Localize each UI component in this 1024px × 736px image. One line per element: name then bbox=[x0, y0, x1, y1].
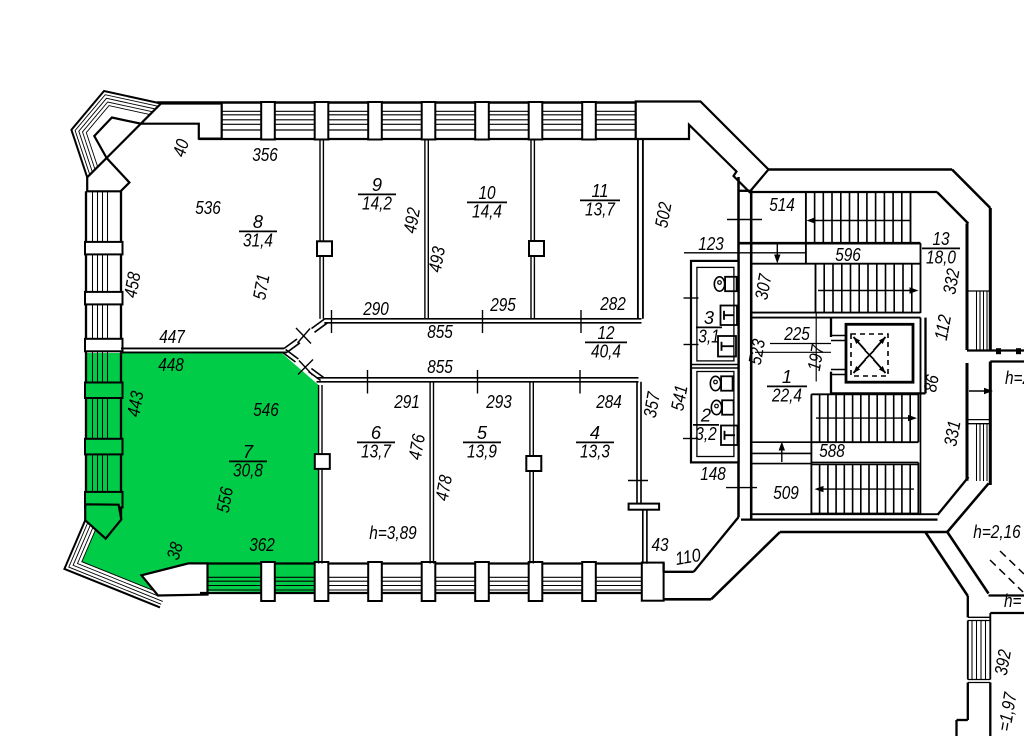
svg-text:536: 536 bbox=[195, 197, 221, 218]
svg-text:855: 855 bbox=[427, 356, 453, 377]
svg-text:291: 291 bbox=[393, 391, 419, 412]
svg-text:290: 290 bbox=[362, 298, 389, 319]
svg-text:571: 571 bbox=[248, 272, 273, 301]
svg-text:3,2: 3,2 bbox=[695, 423, 716, 444]
svg-text:13,3: 13,3 bbox=[580, 441, 610, 462]
svg-text:293: 293 bbox=[485, 391, 511, 412]
svg-text:492: 492 bbox=[399, 206, 424, 235]
svg-text:596: 596 bbox=[835, 244, 861, 265]
svg-text:392: 392 bbox=[990, 648, 1015, 677]
svg-text:14,4: 14,4 bbox=[472, 201, 502, 222]
svg-text:197: 197 bbox=[803, 343, 828, 373]
svg-text:22,4: 22,4 bbox=[771, 385, 802, 406]
svg-text:h=2: h=2 bbox=[1005, 367, 1024, 388]
svg-text:123: 123 bbox=[698, 233, 724, 254]
svg-text:284: 284 bbox=[595, 391, 621, 412]
svg-text:3,1: 3,1 bbox=[698, 326, 719, 347]
svg-text:362: 362 bbox=[249, 534, 275, 555]
svg-text:493: 493 bbox=[424, 245, 449, 274]
svg-text:30,8: 30,8 bbox=[233, 460, 264, 481]
svg-text:514: 514 bbox=[769, 194, 795, 215]
svg-text:13,7: 13,7 bbox=[585, 199, 616, 220]
svg-text:357: 357 bbox=[639, 390, 664, 420]
svg-text:448: 448 bbox=[158, 354, 184, 375]
svg-text:478: 478 bbox=[431, 473, 456, 503]
svg-text:282: 282 bbox=[599, 293, 625, 314]
svg-text:13,7: 13,7 bbox=[361, 441, 392, 462]
svg-text:447: 447 bbox=[159, 326, 185, 347]
svg-text:855: 855 bbox=[427, 321, 453, 342]
svg-text:110: 110 bbox=[673, 544, 703, 569]
svg-text:40,4: 40,4 bbox=[591, 341, 621, 362]
svg-text:h=2,16: h=2,16 bbox=[973, 521, 1021, 542]
svg-text:588: 588 bbox=[819, 440, 845, 461]
svg-text:523: 523 bbox=[744, 337, 769, 366]
svg-text:h=: h= bbox=[1004, 590, 1022, 611]
svg-text:13,9: 13,9 bbox=[467, 441, 497, 462]
svg-text:18,0: 18,0 bbox=[926, 247, 957, 268]
svg-text:14,2: 14,2 bbox=[362, 193, 392, 214]
svg-text:476: 476 bbox=[404, 432, 429, 462]
svg-text:148: 148 bbox=[700, 463, 726, 484]
svg-text:307: 307 bbox=[750, 272, 775, 302]
svg-text:225: 225 bbox=[783, 323, 810, 344]
svg-text:502: 502 bbox=[650, 200, 675, 229]
svg-text:458: 458 bbox=[119, 270, 144, 300]
svg-text:541: 541 bbox=[666, 383, 691, 412]
svg-text:112: 112 bbox=[930, 313, 955, 342]
svg-text:509: 509 bbox=[773, 482, 799, 503]
svg-text:546: 546 bbox=[253, 399, 279, 420]
svg-text:43: 43 bbox=[651, 534, 668, 555]
svg-text:295: 295 bbox=[489, 294, 516, 315]
svg-text:443: 443 bbox=[122, 389, 147, 418]
svg-text:556: 556 bbox=[212, 485, 237, 515]
svg-text:356: 356 bbox=[252, 144, 278, 165]
svg-text:331: 331 bbox=[939, 419, 964, 448]
svg-text:31,4: 31,4 bbox=[243, 230, 273, 251]
svg-text:332: 332 bbox=[938, 267, 963, 296]
svg-text:h=3,89: h=3,89 bbox=[369, 522, 416, 543]
